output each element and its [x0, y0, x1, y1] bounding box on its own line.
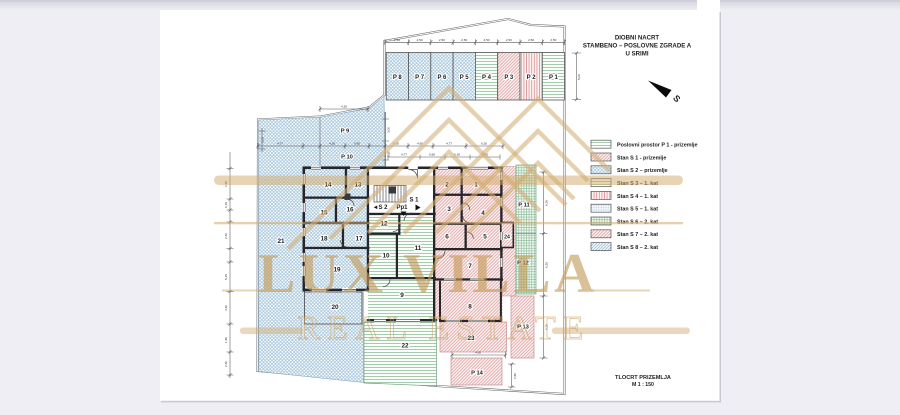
- svg-text:U SRIMI: U SRIMI: [625, 51, 648, 58]
- svg-text:16: 16: [346, 207, 354, 214]
- svg-text:LUX VILLA: LUX VILLA: [258, 243, 598, 305]
- svg-text:2,40: 2,40: [224, 233, 228, 239]
- svg-text:P 6: P 6: [437, 75, 447, 81]
- svg-text:P 10: P 10: [341, 155, 353, 161]
- svg-text:P 14: P 14: [471, 371, 484, 377]
- svg-text:STAMBENO – POSLOVNE ZGRADE A: STAMBENO – POSLOVNE ZGRADE A: [583, 43, 692, 50]
- svg-text:6,30: 6,30: [481, 142, 487, 146]
- svg-text:P 3: P 3: [504, 75, 514, 81]
- svg-text:2,50: 2,50: [513, 373, 517, 379]
- svg-text:Poslovni prostor P 1 - prizeml: Poslovni prostor P 1 - prizemlje: [617, 143, 697, 149]
- svg-text:Stan S 4 – 1. kat: Stan S 4 – 1. kat: [617, 194, 658, 200]
- svg-text:0,60: 0,60: [354, 142, 360, 146]
- svg-text:S 1: S 1: [409, 198, 419, 204]
- svg-text:Stan S 2 – prizemlje: Stan S 2 – prizemlje: [617, 168, 668, 174]
- svg-text:4,30: 4,30: [224, 305, 228, 311]
- svg-text:2,50: 2,50: [528, 38, 534, 42]
- svg-text:6,26: 6,26: [545, 200, 549, 206]
- svg-text:P 8: P 8: [393, 75, 403, 81]
- svg-text:2,50: 2,50: [461, 38, 467, 42]
- svg-text:REAL ESTATE: REAL ESTATE: [297, 310, 590, 347]
- svg-text:17: 17: [355, 236, 363, 243]
- svg-text:P 5: P 5: [460, 75, 470, 81]
- svg-text:24: 24: [504, 235, 510, 241]
- svg-text:6: 6: [445, 234, 449, 241]
- svg-text:P 11: P 11: [518, 203, 530, 209]
- svg-text:5,15: 5,15: [224, 274, 228, 280]
- svg-text:2,30: 2,30: [224, 361, 228, 367]
- svg-text:Pp1: Pp1: [396, 205, 408, 211]
- svg-text:0,60: 0,60: [429, 153, 435, 157]
- svg-text:18: 18: [320, 236, 328, 243]
- svg-text:2,50: 2,50: [483, 38, 489, 42]
- svg-text:2,50: 2,50: [550, 38, 556, 42]
- svg-text:5,00: 5,00: [577, 74, 581, 80]
- svg-text:4,77: 4,77: [401, 153, 407, 157]
- svg-text:Stan S 5 – 1. kat: Stan S 5 – 1. kat: [617, 207, 658, 213]
- svg-text:P 9: P 9: [341, 129, 350, 135]
- svg-text:Stan S 7 – 2. kat: Stan S 7 – 2. kat: [617, 232, 658, 238]
- svg-text:2,50: 2,50: [394, 38, 400, 42]
- svg-text:DIOBNI NACRT: DIOBNI NACRT: [615, 35, 660, 42]
- svg-text:3: 3: [447, 206, 451, 213]
- svg-text:TLOCRT PRIZEMLJA: TLOCRT PRIZEMLJA: [615, 375, 671, 381]
- svg-text:P 7: P 7: [415, 75, 425, 81]
- svg-text:M 1 : 150: M 1 : 150: [632, 382, 654, 388]
- svg-text:3,00: 3,00: [387, 127, 391, 133]
- svg-text:4,30: 4,30: [329, 142, 335, 146]
- svg-text:◄S 2: ◄S 2: [373, 205, 389, 211]
- svg-text:5: 5: [483, 234, 487, 241]
- svg-text:4,30: 4,30: [341, 105, 347, 109]
- svg-text:P 1: P 1: [549, 75, 559, 81]
- svg-text:Stan S 8 – 2. kat: Stan S 8 – 2. kat: [617, 245, 658, 251]
- svg-text:0,15: 0,15: [224, 202, 228, 208]
- svg-text:2,50: 2,50: [439, 38, 445, 42]
- svg-text:P 4: P 4: [482, 75, 492, 81]
- svg-text:4,77: 4,77: [277, 142, 283, 146]
- svg-text:4,60: 4,60: [475, 351, 481, 355]
- svg-text:2,50: 2,50: [417, 38, 423, 42]
- svg-text:4,77: 4,77: [446, 142, 452, 146]
- svg-text:1,50: 1,50: [224, 337, 228, 343]
- svg-text:2,00: 2,00: [261, 137, 265, 143]
- svg-text:Stan S 1 - prizemlje: Stan S 1 - prizemlje: [617, 155, 666, 161]
- svg-text:P 2: P 2: [527, 75, 537, 81]
- svg-text:2,50: 2,50: [506, 38, 512, 42]
